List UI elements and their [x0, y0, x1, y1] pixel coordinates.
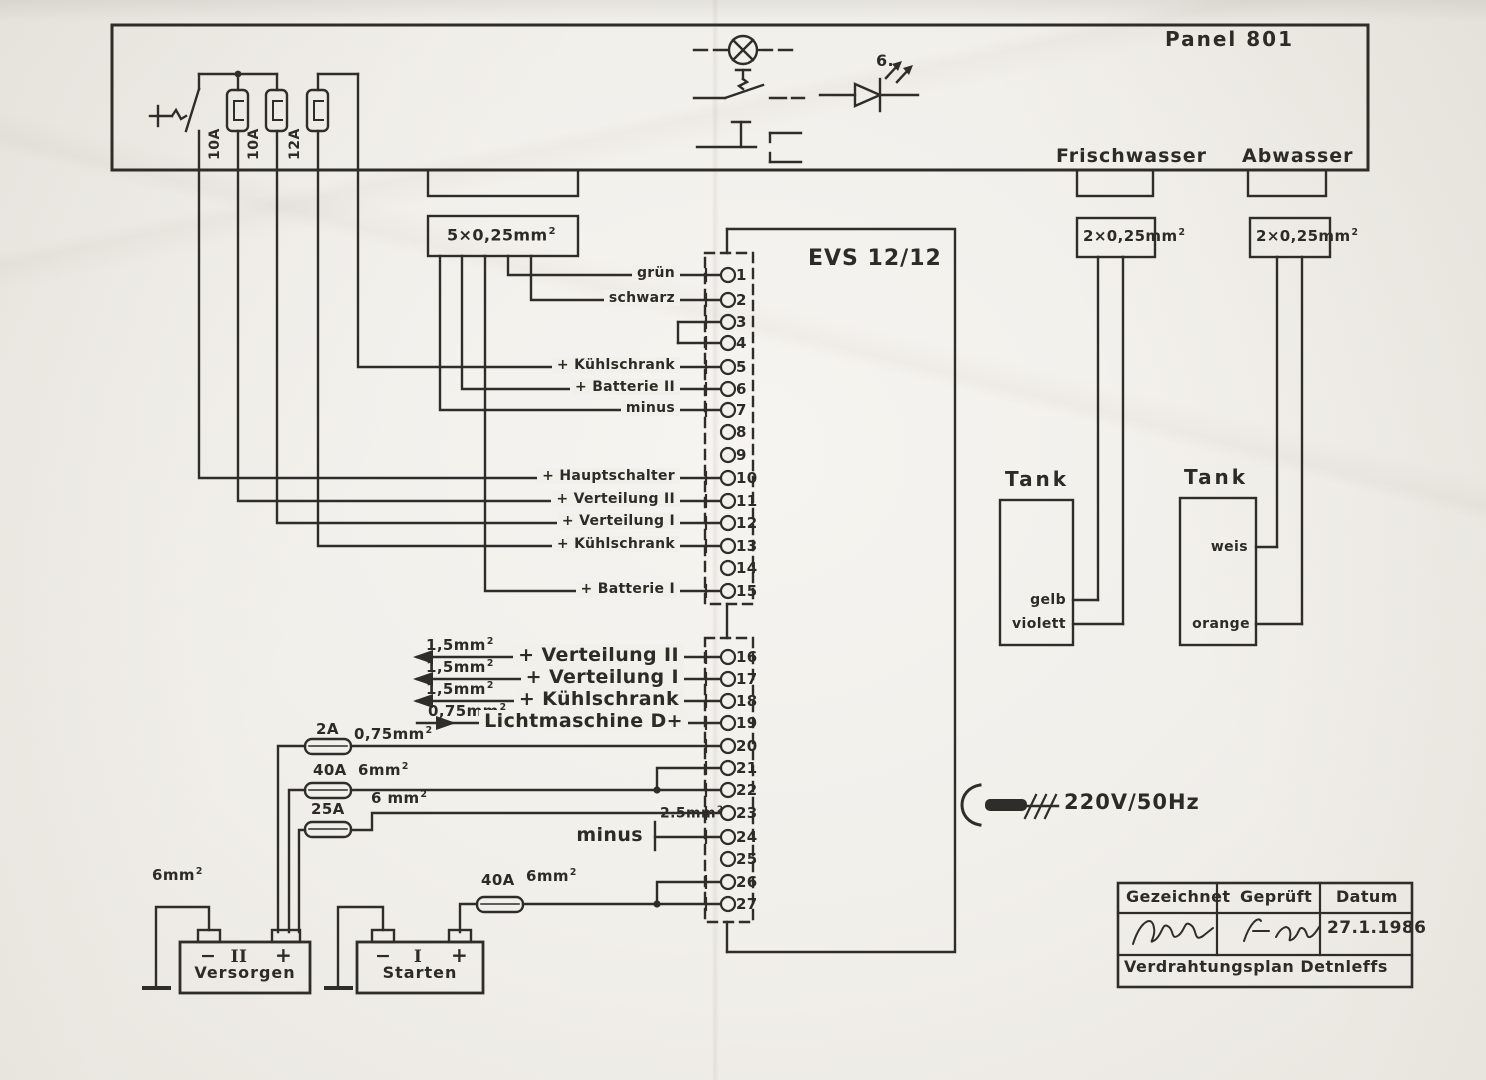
pin-label-17: + Verteilung I	[521, 666, 684, 688]
fresh-cable-label: 2×0,25mm2	[1083, 228, 1185, 245]
pin-terminal-10	[721, 471, 735, 485]
mains-voltage-label: 220V/50Hz	[1064, 790, 1200, 814]
harness-cable-label: 5×0,25mm2	[447, 226, 556, 245]
pin-label-12: + Verteilung I	[557, 513, 680, 529]
drawing-title: Verdrahtungsplan Detnleffs	[1124, 958, 1388, 976]
spec20-sup: 2	[426, 725, 433, 736]
pin-label-2: schwarz	[604, 290, 680, 306]
spec22-sup: 2	[402, 761, 409, 772]
supply-ground-size: 6mm	[152, 866, 195, 884]
pin-terminal-27	[721, 897, 735, 911]
title-block-drawn-header: Gezeichnet	[1126, 888, 1230, 906]
pin-number-10: 10	[736, 469, 757, 487]
waste-cable-sup: 2	[1351, 227, 1358, 238]
fuse-rating-starter: 40A	[481, 872, 515, 889]
pin-terminal-18	[721, 694, 735, 708]
pin-terminal-22	[721, 783, 735, 797]
waste-tank-wire-top: weis	[1211, 539, 1248, 555]
spec17-size: 1,5mm	[426, 658, 486, 676]
pin-terminal-11	[721, 494, 735, 508]
starter-feed-size: 6mm	[526, 867, 569, 885]
wire-spec-pin17: 1,5mm2	[426, 659, 494, 676]
pin-label-24: minus	[571, 824, 648, 846]
waste-tank-wire-bottom: orange	[1192, 616, 1250, 632]
pin-terminal-12	[721, 516, 735, 530]
pin-terminal-13	[721, 539, 735, 553]
pin-number-1: 1	[736, 266, 747, 284]
fresh-water-label: Frischwasser	[1056, 146, 1207, 168]
panel-fuse-label-3: 12A	[286, 128, 304, 160]
title-block-date: 27.1.1986	[1327, 919, 1426, 939]
wire-spec-supply-ground: 6mm2	[152, 867, 203, 884]
connector-title: EVS 12/12	[808, 246, 942, 271]
fuse-rating-pin20: 2A	[316, 721, 339, 738]
pin-number-19: 19	[736, 714, 757, 732]
pin-label-5: + Kühlschrank	[552, 357, 680, 373]
pin-number-5: 5	[736, 358, 747, 376]
pin-number-21: 21	[736, 759, 757, 777]
title-block-date-header: Datum	[1336, 888, 1398, 906]
pin-terminal-5	[721, 360, 735, 374]
pin-label-7: minus	[621, 400, 680, 416]
spec24-sup: 2	[717, 805, 723, 815]
pin-number-23: 23	[736, 804, 757, 822]
pin-terminal-26	[721, 875, 735, 889]
pin-label-6: + Batterie II	[570, 379, 680, 395]
wire-spec-pin16: 1,5mm2	[426, 637, 494, 654]
waste-water-label: Abwasser	[1242, 146, 1354, 168]
wire-spec-pin24: 2.5mm2	[660, 805, 723, 822]
led-number-label: 6.	[876, 52, 894, 70]
panel-fuse-label-1: 10A	[206, 128, 224, 160]
pin-terminal-17	[721, 672, 735, 686]
spec24-size: 2.5mm	[660, 806, 716, 822]
pin-number-8: 8	[736, 423, 747, 441]
fuse-rating-pin22: 40A	[313, 762, 347, 779]
pin-terminal-1	[721, 268, 735, 282]
wire-spec-pin23: 6 mm2	[371, 790, 427, 807]
pin-terminal-3	[721, 315, 735, 329]
pin-terminal-14	[721, 561, 735, 575]
fresh-tank-title: Tank	[1005, 468, 1069, 491]
push-button-symbol	[697, 122, 801, 162]
spec23-sup: 2	[421, 789, 428, 800]
wire-spec-pin20: 0,75mm2	[354, 726, 433, 743]
harness-cable-size: 5×0,25mm	[447, 225, 548, 244]
pin-label-10: + Hauptschalter	[537, 468, 680, 484]
pin-number-24: 24	[736, 828, 757, 846]
spec23-size: 6 mm	[371, 789, 420, 807]
wire-spec-starter-feed: 6mm2	[526, 868, 577, 885]
paper-sheet: Panel 801 Frischwasser Abwasser 6. 10A 1…	[0, 0, 1486, 1080]
pin-number-15: 15	[736, 582, 757, 600]
pin-terminal-16	[721, 650, 735, 664]
fuse-rating-pin23: 25A	[311, 801, 345, 818]
pin-terminal-19	[721, 716, 735, 730]
pin-number-2: 2	[736, 291, 747, 309]
lamp-symbol	[694, 36, 792, 64]
pin-label-15: + Batterie I	[576, 581, 680, 597]
spec22-size: 6mm	[358, 761, 401, 779]
pin-terminal-2	[721, 293, 735, 307]
waste-cable-size: 2×0,25mm	[1256, 227, 1350, 245]
pin-terminal-4	[721, 336, 735, 350]
pin-number-14: 14	[736, 559, 757, 577]
fresh-tank-wire-top: gelb	[1030, 592, 1066, 608]
title-block-checked-header: Geprüft	[1240, 888, 1312, 906]
spec18-size: 1,5mm	[426, 680, 486, 698]
pin-terminal-25	[721, 852, 735, 866]
waste-cable-label: 2×0,25mm2	[1256, 228, 1358, 245]
pin-terminal-21	[721, 761, 735, 775]
pin-label-1: grün	[632, 265, 680, 281]
signature-drawn	[1133, 921, 1213, 944]
pin-number-20: 20	[736, 737, 757, 755]
pin-number-16: 16	[736, 648, 757, 666]
pin-label-16: + Verteilung II	[513, 644, 684, 666]
pin-number-11: 11	[736, 492, 757, 510]
pin-terminal-24	[721, 830, 735, 844]
pin-number-13: 13	[736, 537, 757, 555]
pin-label-11: + Verteilung II	[551, 491, 680, 507]
pin-terminal-15	[721, 584, 735, 598]
supply-battery-name: Versorgen	[182, 964, 308, 982]
pin-number-17: 17	[736, 670, 757, 688]
pin-number-9: 9	[736, 446, 747, 464]
pin-terminal-8	[721, 425, 735, 439]
waste-tank-title: Tank	[1184, 466, 1248, 489]
pin-number-3: 3	[736, 313, 747, 331]
fresh-cable-size: 2×0,25mm	[1083, 227, 1177, 245]
panel-title: Panel 801	[1165, 28, 1294, 51]
spec17-sup: 2	[487, 658, 494, 669]
fresh-tank-wire-bottom: violett	[1012, 616, 1066, 632]
signature-checked	[1244, 919, 1320, 941]
jumper-pins-3-4	[678, 322, 721, 343]
pin-number-18: 18	[736, 692, 757, 710]
starter-feed	[460, 882, 721, 932]
pin-number-25: 25	[736, 850, 757, 868]
mains-connector	[962, 785, 1058, 825]
pin-number-6: 6	[736, 380, 747, 398]
spec18-sup: 2	[487, 680, 494, 691]
pin-number-4: 4	[736, 334, 747, 352]
pin-terminal-9	[721, 448, 735, 462]
spec16-sup: 2	[487, 636, 494, 647]
pin-terminal-6	[721, 382, 735, 396]
pin-number-27: 27	[736, 895, 757, 913]
pin-label-18: + Kühlschrank	[514, 688, 684, 710]
panel-fuse-label-2: 10A	[245, 128, 263, 160]
fresh-cable-sup: 2	[1178, 227, 1185, 238]
pin-number-22: 22	[736, 781, 757, 799]
pin-label-19: Lichtmaschine D+	[479, 710, 688, 732]
spec16-size: 1,5mm	[426, 636, 486, 654]
wire-spec-pin22: 6mm2	[358, 762, 409, 779]
pin-number-7: 7	[736, 401, 747, 419]
spec20-size: 0,75mm	[354, 725, 425, 743]
pin-number-12: 12	[736, 514, 757, 532]
starter-battery-name: Starten	[359, 964, 481, 982]
starter-feed-sup: 2	[570, 867, 577, 878]
supply-ground-sup: 2	[196, 866, 203, 877]
wire-spec-pin18: 1,5mm2	[426, 681, 494, 698]
pin-terminal-7	[721, 403, 735, 417]
signatures	[1133, 919, 1320, 944]
pin-number-26: 26	[736, 873, 757, 891]
harness-cable-sup: 2	[549, 226, 556, 237]
panel-fuses	[227, 74, 328, 131]
pin-label-13: + Kühlschrank	[552, 536, 680, 552]
switch-symbol	[694, 70, 804, 98]
led-symbol	[820, 61, 918, 111]
pin-terminal-20	[721, 739, 735, 753]
